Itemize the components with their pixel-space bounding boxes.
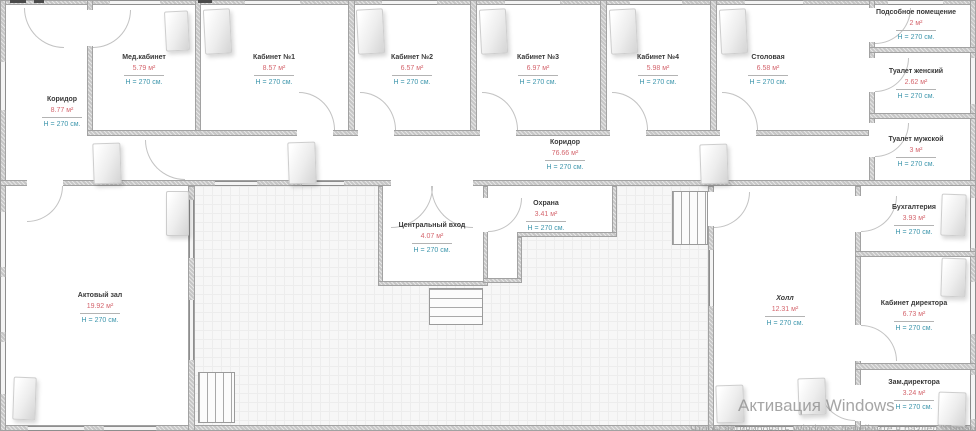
room-area: 6.73 м² [894,309,934,322]
room-height: H = 270 см. [352,77,472,88]
room-height: H = 270 см. [856,32,976,43]
radiator [940,258,966,298]
wall [612,186,617,237]
windows-activation-watermark: Активация Windows [738,396,895,416]
tick-mark [10,0,26,3]
room-height: H = 270 см. [725,318,845,329]
doorway [358,130,394,136]
room-area: 5.98 м² [638,63,678,76]
room-name: Кабинет №4 [598,52,718,63]
room-area: 3 м² [896,145,936,158]
room-name: Бухгалтерия [854,202,974,213]
room-name: Холл [725,293,845,304]
radiator [609,8,638,54]
room-label-podsobnoe: Подсобное помещение 2 м² H = 270 см. [856,7,976,44]
room-label-med-kabinet: Мед.кабинет 5.79 м² H = 270 см. [84,52,204,89]
room-label-tualet-zhenskiy: Туалет женский 2.62 м² H = 270 см. [856,66,976,103]
doorway [610,130,646,136]
wall [483,278,522,283]
radiator [166,191,189,236]
room-label-tsentralniy-vhod: Центральный вход 4.07 м² H = 270 см. [372,220,492,257]
radiator [699,144,728,185]
window [630,0,682,5]
room-height: H = 270 см. [708,77,828,88]
door-arc [27,186,63,222]
radiator [164,10,190,51]
room-label-kabinet-2: Кабинет №2 6.57 м² H = 270 см. [352,52,472,89]
room-name: Центральный вход [372,220,492,231]
room-area: 6.58 м² [748,63,788,76]
room-area: 6.57 м² [392,63,432,76]
window [745,0,803,5]
window [888,0,943,5]
door-arc [714,192,750,228]
room-height: H = 270 см. [854,227,974,238]
door-arc [722,92,758,130]
room-name: Мед.кабинет [84,52,204,63]
doorway [480,130,516,136]
room-area: 3.41 м² [526,209,566,222]
floor-plan-canvas: Коридор 8.77 м² H = 270 см. Мед.кабинет … [0,0,976,431]
window [189,300,194,360]
room-name: Кабинет №1 [214,52,334,63]
door-arc [482,92,518,130]
room-height: H = 270 см. [598,77,718,88]
room-area: 8.57 м² [254,63,294,76]
room-name: Кабинет №3 [478,52,598,63]
tick-mark [198,0,212,3]
radiator [719,8,748,54]
room-label-kabinet-1: Кабинет №1 8.57 м² H = 270 см. [214,52,334,89]
room-height: H = 270 см. [478,77,598,88]
room-label-koridor-main: Коридор 76.66 м² H = 270 см. [505,137,625,174]
room-area: 3.93 м² [894,213,934,226]
room-label-koridor-left: Коридор 8.77 м² H = 270 см. [2,94,122,131]
room-name: Актовый зал [40,290,160,301]
door-arc [145,140,185,180]
radiator [287,142,316,185]
window [104,426,156,431]
room-height: H = 270 см. [856,159,976,170]
room-name: Столовая [708,52,828,63]
room-area: 19.92 м² [80,301,120,314]
radiator [92,143,121,185]
room-area: 3.24 м² [894,388,934,401]
room-name: Зам.директора [854,377,974,388]
room-area: 12.31 м² [765,304,805,317]
radiator [356,8,385,54]
wall [517,237,522,283]
window [28,426,84,431]
room-area: 6.97 м² [518,63,558,76]
room-label-kabinet-direktora: Кабинет директора 6.73 м² H = 270 см. [854,298,974,335]
stairs-entrance [429,288,483,325]
window [382,0,437,5]
tick-mark [34,0,44,3]
room-height: H = 270 см. [214,77,334,88]
room-area: 76.66 м² [545,148,585,161]
window [245,0,300,5]
room-label-stolovaya: Столовая 6.58 м² H = 270 см. [708,52,828,89]
security-room-floor-lobe [488,232,517,278]
room-height: H = 270 см. [2,119,122,130]
room-area: 8.77 м² [42,105,82,118]
room-name: Кабинет директора [854,298,974,309]
room-name: Туалет мужской [856,134,976,145]
door-arc [299,92,335,130]
stairs-hall [672,191,708,245]
room-label-okhrana: Охрана 3.41 м² H = 270 см. [486,198,606,235]
room-name: Кабинет №2 [352,52,472,63]
door-arc [360,92,396,130]
room-name: Подсобное помещение [856,7,976,18]
stairs-southwest [198,372,235,423]
room-name: Коридор [2,94,122,105]
room-name: Охрана [486,198,606,209]
room-label-kabinet-4: Кабинет №4 5.98 м² H = 270 см. [598,52,718,89]
window [0,277,6,332]
door-arc [24,8,64,48]
window [0,342,6,394]
wall [378,281,488,286]
radiator [12,377,36,421]
wall [0,180,976,186]
wall [869,113,976,119]
window [189,200,194,258]
room-height: H = 270 см. [84,77,204,88]
windows-activation-watermark-subtext: Чтобы активировать Windows, перейдите в … [690,423,976,431]
room-label-buhgalteriya: Бухгалтерия 3.93 м² H = 270 см. [854,202,974,239]
room-height: H = 270 см. [505,162,625,173]
radiator [203,8,232,54]
room-height: H = 270 см. [372,245,492,256]
door-arc [612,92,648,130]
window [709,250,714,306]
room-height: H = 270 см. [854,323,974,334]
wall [855,251,976,257]
window [0,212,6,267]
radiator [479,8,508,54]
doorway [720,130,756,136]
room-area: 5.79 м² [124,63,164,76]
window [215,181,257,186]
room-label-holl: Холл 12.31 м² H = 270 см. [725,293,845,330]
room-name: Туалет женский [856,66,976,77]
room-label-tualet-muzhskoy: Туалет мужской 3 м² H = 270 см. [856,134,976,171]
wall [855,363,976,370]
room-height: H = 270 см. [856,91,976,102]
room-area: 2.62 м² [896,77,936,90]
room-area: 2 м² [896,18,936,31]
room-height: H = 270 см. [486,223,606,234]
window [110,0,160,5]
room-height: H = 270 см. [40,315,160,326]
room-area: 4.07 м² [412,231,452,244]
door-arc [93,10,131,48]
window [505,0,560,5]
wall [869,47,976,53]
room-label-aktoviy-zal: Актовый зал 19.92 м² H = 270 см. [40,290,160,327]
room-label-kabinet-3: Кабинет №3 6.97 м² H = 270 см. [478,52,598,89]
doorway [297,130,333,136]
room-name: Коридор [505,137,625,148]
